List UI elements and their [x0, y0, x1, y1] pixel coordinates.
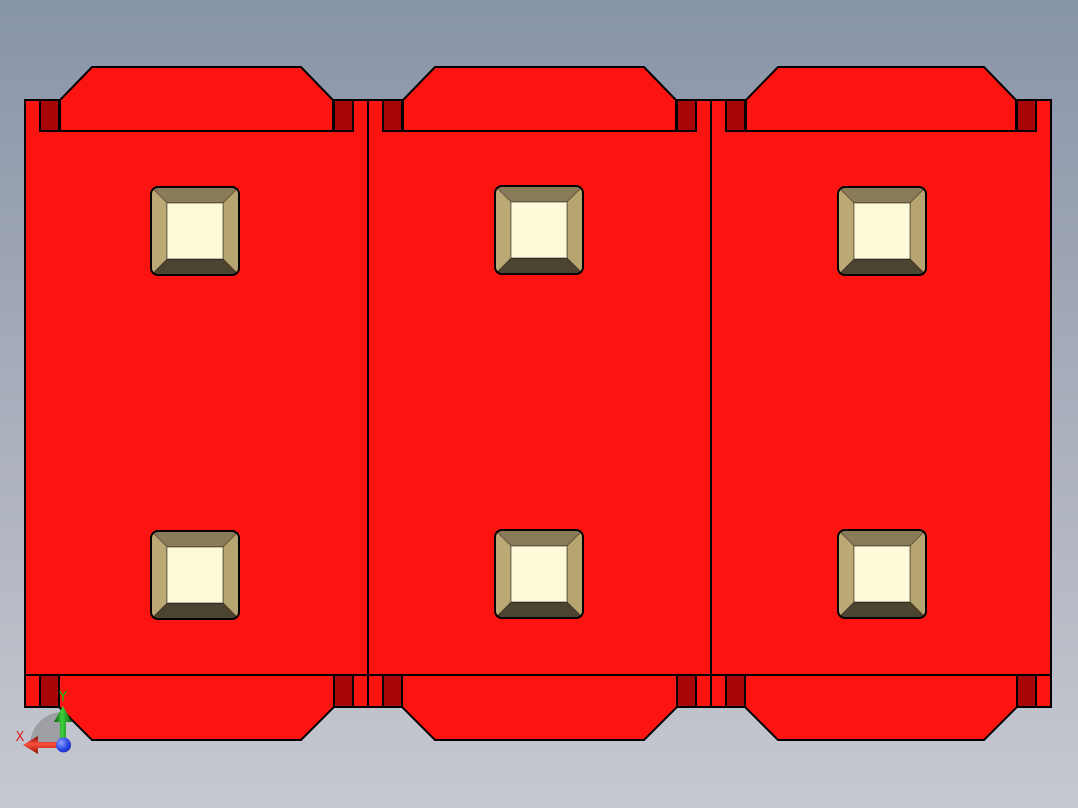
cad-model-canvas: XY — [0, 0, 1078, 808]
hole-bottom-face — [854, 546, 910, 602]
panel-1[interactable] — [25, 67, 368, 740]
square-counterbore-hole[interactable] — [150, 530, 240, 620]
panel-3[interactable] — [711, 67, 1051, 740]
x-axis-label: X — [16, 730, 25, 745]
panel-top-flap[interactable] — [403, 67, 676, 131]
side-wall-tab[interactable] — [40, 100, 59, 131]
side-wall-tab[interactable] — [677, 100, 696, 131]
panel-top-flap[interactable] — [746, 67, 1016, 131]
side-wall-tab[interactable] — [726, 675, 745, 707]
side-wall-tab[interactable] — [726, 100, 745, 131]
z-axis-ball — [56, 738, 71, 753]
square-counterbore-hole[interactable] — [837, 529, 927, 619]
hole-bottom-face — [511, 202, 567, 258]
side-wall-tab[interactable] — [383, 675, 402, 707]
side-wall-tab[interactable] — [383, 100, 402, 131]
side-wall-tab[interactable] — [334, 675, 353, 707]
side-wall-tab[interactable] — [334, 100, 353, 131]
panel-bottom-flap[interactable] — [402, 675, 677, 740]
hole-bottom-face — [511, 546, 567, 602]
panel-bottom-flap[interactable] — [745, 675, 1017, 740]
side-wall-tab[interactable] — [40, 675, 59, 707]
square-counterbore-hole[interactable] — [150, 186, 240, 276]
square-counterbore-hole[interactable] — [494, 529, 584, 619]
side-wall-tab[interactable] — [1017, 100, 1036, 131]
hole-bottom-face — [854, 203, 910, 259]
panel-top-flap[interactable] — [60, 67, 333, 131]
square-counterbore-hole[interactable] — [837, 186, 927, 276]
panel-bottom-flap[interactable] — [59, 675, 334, 740]
hole-bottom-face — [167, 203, 223, 259]
y-axis-label: Y — [58, 690, 67, 705]
square-counterbore-hole[interactable] — [494, 185, 584, 275]
side-wall-tab[interactable] — [677, 675, 696, 707]
panel-2[interactable] — [368, 67, 711, 740]
side-wall-tab[interactable] — [1017, 675, 1036, 707]
hole-bottom-face — [167, 547, 223, 603]
cad-viewport[interactable]: XY — [0, 0, 1078, 808]
